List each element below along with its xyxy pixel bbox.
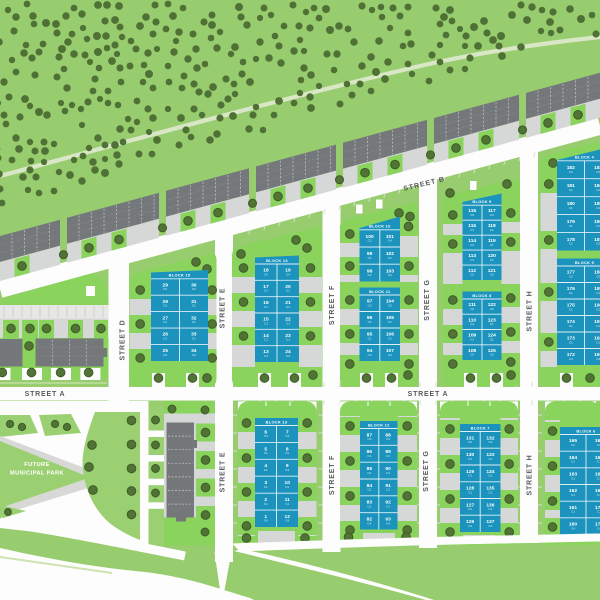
svg-text:C3: C3 [470,353,474,357]
svg-text:C1: C1 [286,321,290,325]
svg-text:BLOCK 11: BLOCK 11 [369,289,391,294]
svg-text:C1: C1 [596,188,600,192]
svg-text:C1: C1 [386,488,390,492]
svg-text:STREET A: STREET A [408,391,449,398]
svg-text:C1: C1 [470,322,474,326]
svg-text:C2: C2 [470,307,474,311]
svg-text:C1: C1 [569,324,573,328]
svg-text:C1: C1 [285,502,289,506]
svg-text:C1: C1 [368,320,372,324]
svg-text:C1: C1 [286,305,290,309]
svg-text:C2: C2 [468,440,472,444]
svg-text:C4: C4 [388,239,392,243]
svg-text:C1: C1 [596,224,600,228]
svg-text:C1: C1 [468,490,472,494]
svg-text:C1: C1 [596,206,600,210]
svg-text:C1: C1 [470,228,474,232]
svg-text:C3: C3 [285,434,289,438]
svg-text:C2: C2 [368,303,372,307]
svg-text:C2: C2 [470,273,474,277]
svg-text:C1: C1 [490,258,494,262]
svg-text:C1: C1 [367,454,371,458]
svg-text:C1: C1 [569,340,573,344]
svg-text:C1: C1 [368,336,372,340]
svg-text:C1: C1 [163,320,167,324]
svg-text:C1: C1 [571,476,575,480]
svg-text:C2: C2 [388,273,392,277]
svg-text:C2: C2 [388,303,392,307]
svg-text:C3: C3 [367,437,371,441]
svg-text:C4: C4 [386,521,390,525]
svg-text:C4: C4 [264,354,268,358]
svg-text:C4: C4 [569,357,573,361]
svg-text:C3: C3 [490,353,494,357]
svg-text:C1: C1 [569,291,573,295]
svg-text:C4: C4 [388,353,392,357]
svg-text:C1: C1 [490,243,494,247]
svg-text:C4: C4 [368,353,372,357]
svg-text:C2: C2 [368,273,372,277]
svg-text:C1: C1 [386,454,390,458]
svg-text:C1: C1 [388,320,392,324]
svg-text:C1: C1 [571,493,575,497]
svg-text:C3: C3 [163,353,167,357]
svg-text:C1: C1 [286,338,290,342]
svg-text:STREET A: STREET A [25,391,66,398]
svg-text:BLOCK 10: BLOCK 10 [369,224,391,229]
svg-text:STREET H: STREET H [527,454,534,495]
svg-text:C1: C1 [285,485,289,489]
svg-text:C1: C1 [286,289,290,293]
svg-text:C1: C1 [596,291,600,295]
svg-text:C1: C1 [264,338,268,342]
svg-text:C1: C1 [470,258,474,262]
svg-text:C4: C4 [264,519,268,523]
svg-text:C1: C1 [368,256,372,260]
svg-text:C1: C1 [488,490,492,494]
svg-text:C1: C1 [264,289,268,293]
svg-text:STREET G: STREET G [423,450,430,491]
svg-text:C4: C4 [488,524,492,528]
svg-text:C2: C2 [192,287,196,291]
svg-text:BLOCK 15: BLOCK 15 [169,273,191,278]
svg-text:C1: C1 [264,451,268,455]
svg-text:C1: C1 [264,321,268,325]
svg-text:FUTURE: FUTURE [24,462,49,468]
svg-text:C2: C2 [488,440,492,444]
svg-text:C1: C1 [468,507,472,511]
svg-text:C1: C1 [386,504,390,508]
svg-text:C2: C2 [490,273,494,277]
svg-text:C1: C1 [367,504,371,508]
svg-text:C1: C1 [488,474,492,478]
svg-text:C1: C1 [490,337,494,341]
svg-text:MUNICIPAL PARK: MUNICIPAL PARK [10,471,64,477]
svg-text:C3: C3 [192,353,196,357]
svg-text:C1: C1 [571,510,575,514]
svg-text:C1: C1 [163,304,167,308]
svg-text:C1: C1 [285,451,289,455]
svg-text:STREET F: STREET F [329,455,336,495]
svg-text:C2: C2 [368,239,372,243]
svg-text:C1: C1 [388,336,392,340]
svg-text:STREET F: STREET F [329,285,336,325]
svg-text:C1: C1 [490,228,494,232]
svg-text:C1: C1 [470,243,474,247]
svg-text:C1: C1 [264,305,268,309]
svg-text:BLOCK 6: BLOCK 6 [576,428,596,433]
svg-text:C1: C1 [596,340,600,344]
svg-text:BLOCK 7: BLOCK 7 [471,425,490,430]
svg-text:C1: C1 [569,206,573,210]
svg-text:BLOCK 8: BLOCK 8 [472,293,492,298]
svg-text:BLOCK 14: BLOCK 14 [266,258,288,263]
svg-text:C2: C2 [596,274,600,278]
svg-text:C1: C1 [569,307,573,311]
svg-text:C2: C2 [569,274,573,278]
svg-text:C1: C1 [192,320,196,324]
svg-text:C1: C1 [388,256,392,260]
svg-text:C4: C4 [571,526,575,530]
svg-text:C1: C1 [488,457,492,461]
svg-text:BLOCK 4: BLOCK 4 [575,155,595,160]
svg-text:C4: C4 [264,272,268,276]
svg-text:C2: C2 [596,242,600,246]
svg-text:C1: C1 [468,474,472,478]
svg-text:C4: C4 [470,213,474,217]
svg-text:C1: C1 [468,457,472,461]
svg-text:C2: C2 [163,287,167,291]
svg-text:BLOCK 13: BLOCK 13 [266,419,288,424]
svg-text:C1: C1 [264,468,268,472]
svg-text:C1: C1 [163,337,167,341]
svg-text:C2: C2 [569,242,573,246]
svg-text:C4: C4 [286,354,290,358]
svg-text:BLOCK 5: BLOCK 5 [575,260,595,265]
svg-text:C1: C1 [490,322,494,326]
svg-text:C1: C1 [488,507,492,511]
svg-text:C1: C1 [386,471,390,475]
svg-text:C1: C1 [367,488,371,492]
svg-text:C1: C1 [264,502,268,506]
svg-text:C1: C1 [596,307,600,311]
svg-text:BLOCK 9: BLOCK 9 [472,199,492,204]
svg-text:C3: C3 [264,434,268,438]
svg-text:C1: C1 [571,460,575,464]
svg-text:C2: C2 [386,437,390,441]
svg-text:C4: C4 [490,213,494,217]
svg-text:C1: C1 [367,471,371,475]
svg-text:STREET G: STREET G [424,279,431,320]
svg-text:C4: C4 [569,170,573,174]
svg-text:C1: C1 [192,337,196,341]
svg-text:C4: C4 [286,272,290,276]
svg-text:C1: C1 [596,324,600,328]
svg-text:C2: C2 [490,307,494,311]
svg-text:C2: C2 [571,443,575,447]
svg-text:STREET D: STREET D [120,319,127,360]
svg-text:C1: C1 [569,224,573,228]
svg-text:STREET H: STREET H [527,290,534,331]
svg-text:STREET E: STREET E [220,288,227,329]
svg-text:C4: C4 [468,524,472,528]
svg-text:C1: C1 [285,468,289,472]
svg-text:C1: C1 [569,188,573,192]
svg-text:BLOCK 12: BLOCK 12 [368,422,390,427]
svg-text:C4: C4 [596,357,600,361]
svg-text:C4: C4 [367,521,371,525]
svg-text:C4: C4 [596,170,600,174]
svg-text:STREET E: STREET E [220,452,227,493]
svg-text:C4: C4 [285,519,289,523]
svg-text:C1: C1 [264,485,268,489]
svg-text:C1: C1 [470,337,474,341]
svg-text:C1: C1 [192,304,196,308]
